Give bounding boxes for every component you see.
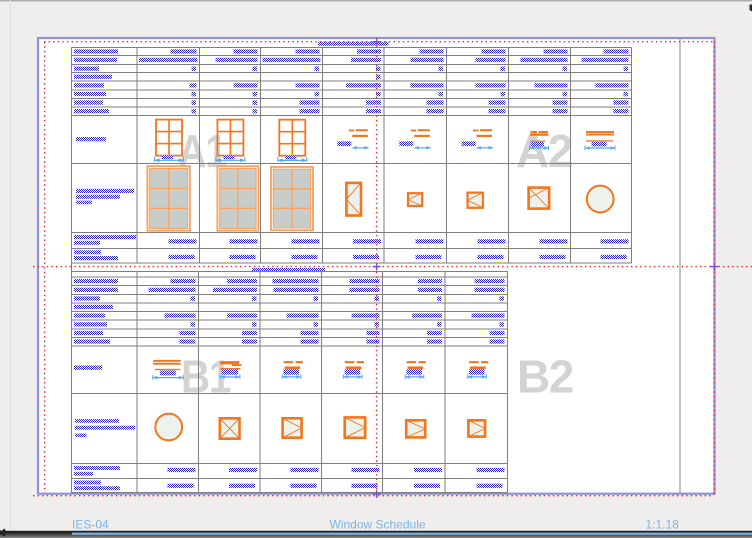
svg-text:B2: B2	[517, 351, 573, 403]
svg-text:1:1.18: 1:1.18	[646, 518, 680, 532]
svg-text:IES-04: IES-04	[72, 518, 109, 532]
svg-text:Window Schedule: Window Schedule	[330, 518, 426, 532]
